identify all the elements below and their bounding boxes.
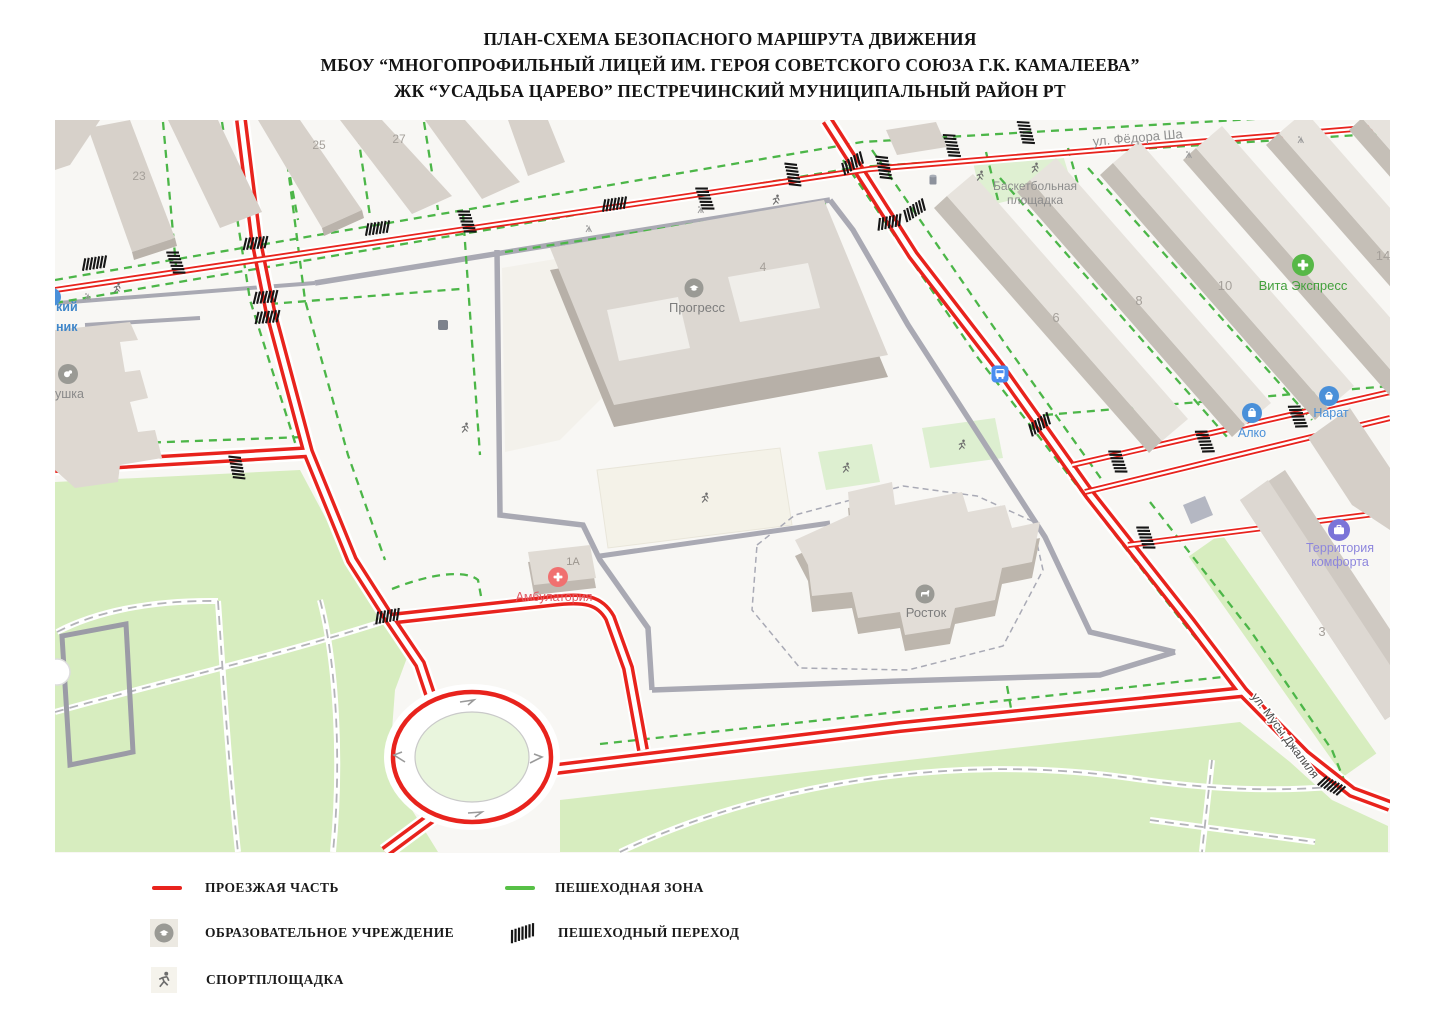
label-territory-1: Территория <box>1306 541 1374 555</box>
label-narat: Нарат <box>1313 406 1349 420</box>
title-line-1: ПЛАН-СХЕМА БЕЗОПАСНОГО МАРШРУТА ДВИЖЕНИЯ <box>0 26 1440 52</box>
label-b8: 8 <box>1135 293 1142 308</box>
label-rostok: Росток <box>906 605 947 620</box>
label-b10: 10 <box>1218 278 1232 293</box>
education-icon <box>150 919 178 947</box>
medical-icon <box>548 567 568 587</box>
label-b14: 14 <box>1376 248 1390 263</box>
roadway-line-icon <box>152 886 182 890</box>
alko-icon <box>1242 403 1262 423</box>
label-progress: Прогресс <box>669 300 726 315</box>
route-map: Прогресс 4 Росток Амбулатория 1А Баскетб… <box>55 120 1390 853</box>
legend-label-education: ОБРАЗОВАТЕЛЬНОЕ УЧРЕЖДЕНИЕ <box>205 925 454 941</box>
school-icon <box>685 279 704 298</box>
legend-item-roadway: ПРОЕЗЖАЯ ЧАСТЬ <box>152 874 339 902</box>
label-b25: 25 <box>312 138 326 152</box>
legend-item-sport: СПОРТПЛОЩАДКА <box>151 966 344 994</box>
label-b6: 6 <box>1052 310 1059 325</box>
pedestrian-crossing-icon <box>506 919 540 947</box>
map-canvas: Прогресс 4 Росток Амбулатория 1А Баскетб… <box>55 120 1390 853</box>
label-vita: Вита Экспресс <box>1259 278 1348 293</box>
page-title: ПЛАН-СХЕМА БЕЗОПАСНОГО МАРШРУТА ДВИЖЕНИЯ… <box>0 26 1440 104</box>
pedestrian-zone-line-icon <box>505 886 535 890</box>
label-b23: 23 <box>132 169 146 183</box>
kindergarten-icon <box>58 364 78 384</box>
gate-icon <box>438 320 448 330</box>
label-basketball-2: площадка <box>1007 193 1063 207</box>
label-ambulatoria: Амбулатория <box>516 590 593 604</box>
label-b27: 27 <box>392 132 406 146</box>
title-line-2: МБОУ “МНОГОПРОФИЛЬНЫЙ ЛИЦЕЙ ИМ. ГЕРОЯ СО… <box>0 52 1440 78</box>
legend-label-roadway: ПРОЕЗЖАЯ ЧАСТЬ <box>205 880 339 896</box>
plan-schema-page: { "title": { "line1": "ПЛАН-СХЕМА БЕЗОПА… <box>0 0 1440 1024</box>
label-partial-ushka: ушка <box>55 387 84 401</box>
legend-item-education: ОБРАЗОВАТЕЛЬНОЕ УЧРЕЖДЕНИЕ <box>150 919 454 947</box>
legend-label-ped-zone: ПЕШЕХОДНАЯ ЗОНА <box>555 880 704 896</box>
label-ambulatoria-num: 1А <box>566 556 580 568</box>
label-partial-kiy: кий <box>56 300 78 314</box>
label-partial-nik: ник <box>56 320 78 334</box>
legend-label-ped-crossing: ПЕШЕХОДНЫЙ ПЕРЕХОД <box>558 925 739 941</box>
territory-icon <box>1328 519 1350 541</box>
title-line-3: ЖК “УСАДЬБА ЦАРЕВО” ПЕСТРЕЧИНСКИЙ МУНИЦИ… <box>0 78 1440 104</box>
pharmacy-icon <box>1292 254 1314 276</box>
label-basketball-1: Баскетбольная <box>993 179 1077 193</box>
label-b3: 3 <box>1318 624 1325 639</box>
label-alko: Алко <box>1238 426 1266 440</box>
legend-label-sport: СПОРТПЛОЩАДКА <box>206 972 344 988</box>
sport-ground-icon <box>151 967 177 993</box>
bus-stop-icon <box>992 366 1009 383</box>
roundabout <box>384 684 560 830</box>
rostok-icon <box>916 585 935 604</box>
legend-item-ped-zone: ПЕШЕХОДНАЯ ЗОНА <box>505 874 704 902</box>
label-school-num: 4 <box>760 260 767 274</box>
legend-item-ped-crossing: ПЕШЕХОДНЫЙ ПЕРЕХОД <box>506 919 739 947</box>
label-territory-2: комфорта <box>1311 555 1369 569</box>
narat-icon <box>1319 386 1339 406</box>
